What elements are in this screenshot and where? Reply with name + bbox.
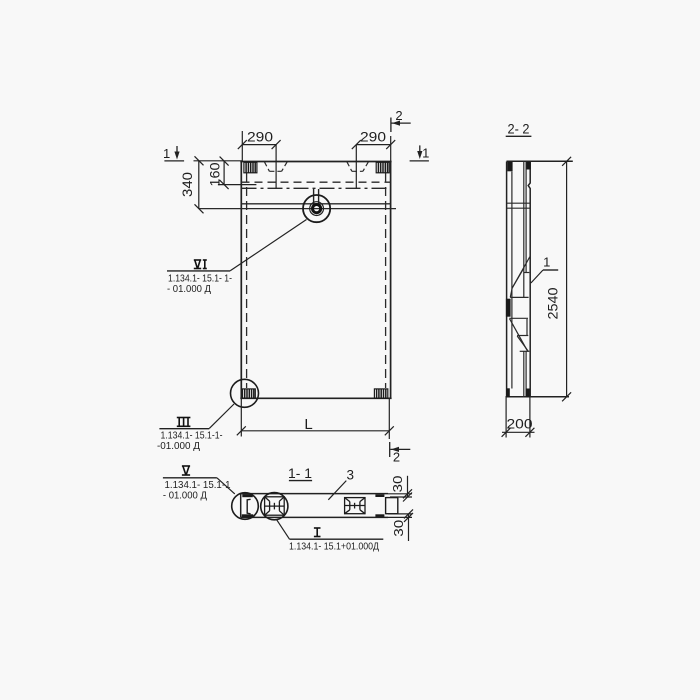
svg-text:L: L [304,416,312,433]
svg-text:- 01.000 Д: - 01.000 Д [167,283,211,295]
svg-text:1: 1 [543,255,550,270]
svg-text:1: 1 [163,146,170,161]
svg-text:1- 1: 1- 1 [288,466,312,481]
svg-text:2540: 2540 [546,288,561,320]
svg-text:2- 2: 2- 2 [508,122,530,137]
svg-text:160: 160 [208,163,223,187]
svg-text:1: 1 [422,146,429,161]
svg-text:2: 2 [393,450,400,465]
svg-text:-01.000 Д: -01.000 Д [157,440,200,452]
svg-text:340: 340 [180,172,195,197]
svg-text:290: 290 [247,130,273,145]
svg-text:30: 30 [391,520,406,537]
svg-text:1.134.1- 15.1+01.000Д: 1.134.1- 15.1+01.000Д [289,541,379,553]
svg-text:- 01.000 Д: - 01.000 Д [163,490,207,502]
svg-text:3: 3 [347,468,355,483]
svg-text:200: 200 [507,417,533,432]
svg-text:30: 30 [390,476,405,493]
svg-text:290: 290 [360,130,386,145]
svg-text:2: 2 [395,108,402,123]
